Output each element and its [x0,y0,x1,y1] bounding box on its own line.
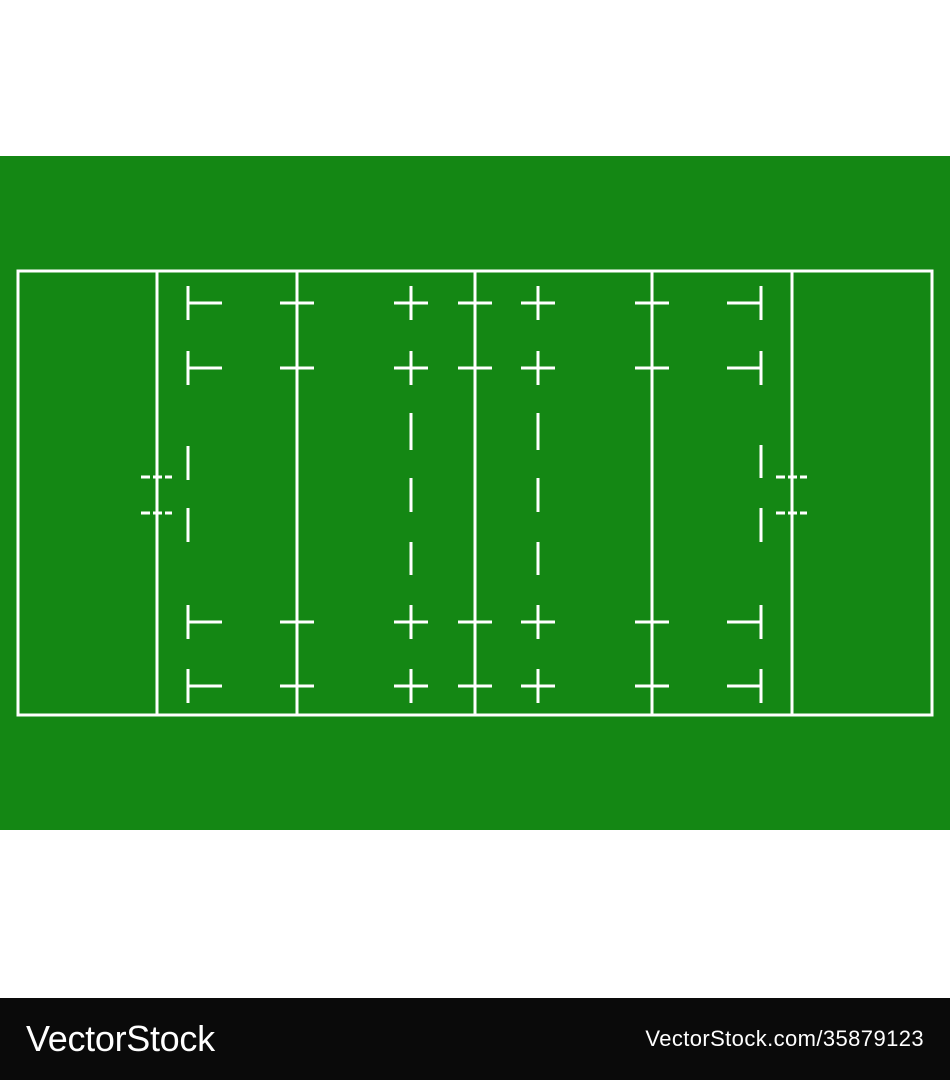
watermark-bar: VectorStock VectorStock.com/35879123 [0,998,950,1080]
vectorstock-image-url: VectorStock.com/35879123 [645,1028,924,1050]
rugby-field-diagram [0,0,950,1080]
vector-illustration-canvas: VectorStock VectorStock.com/35879123 [0,0,950,1080]
vectorstock-logo: VectorStock [26,1021,215,1057]
